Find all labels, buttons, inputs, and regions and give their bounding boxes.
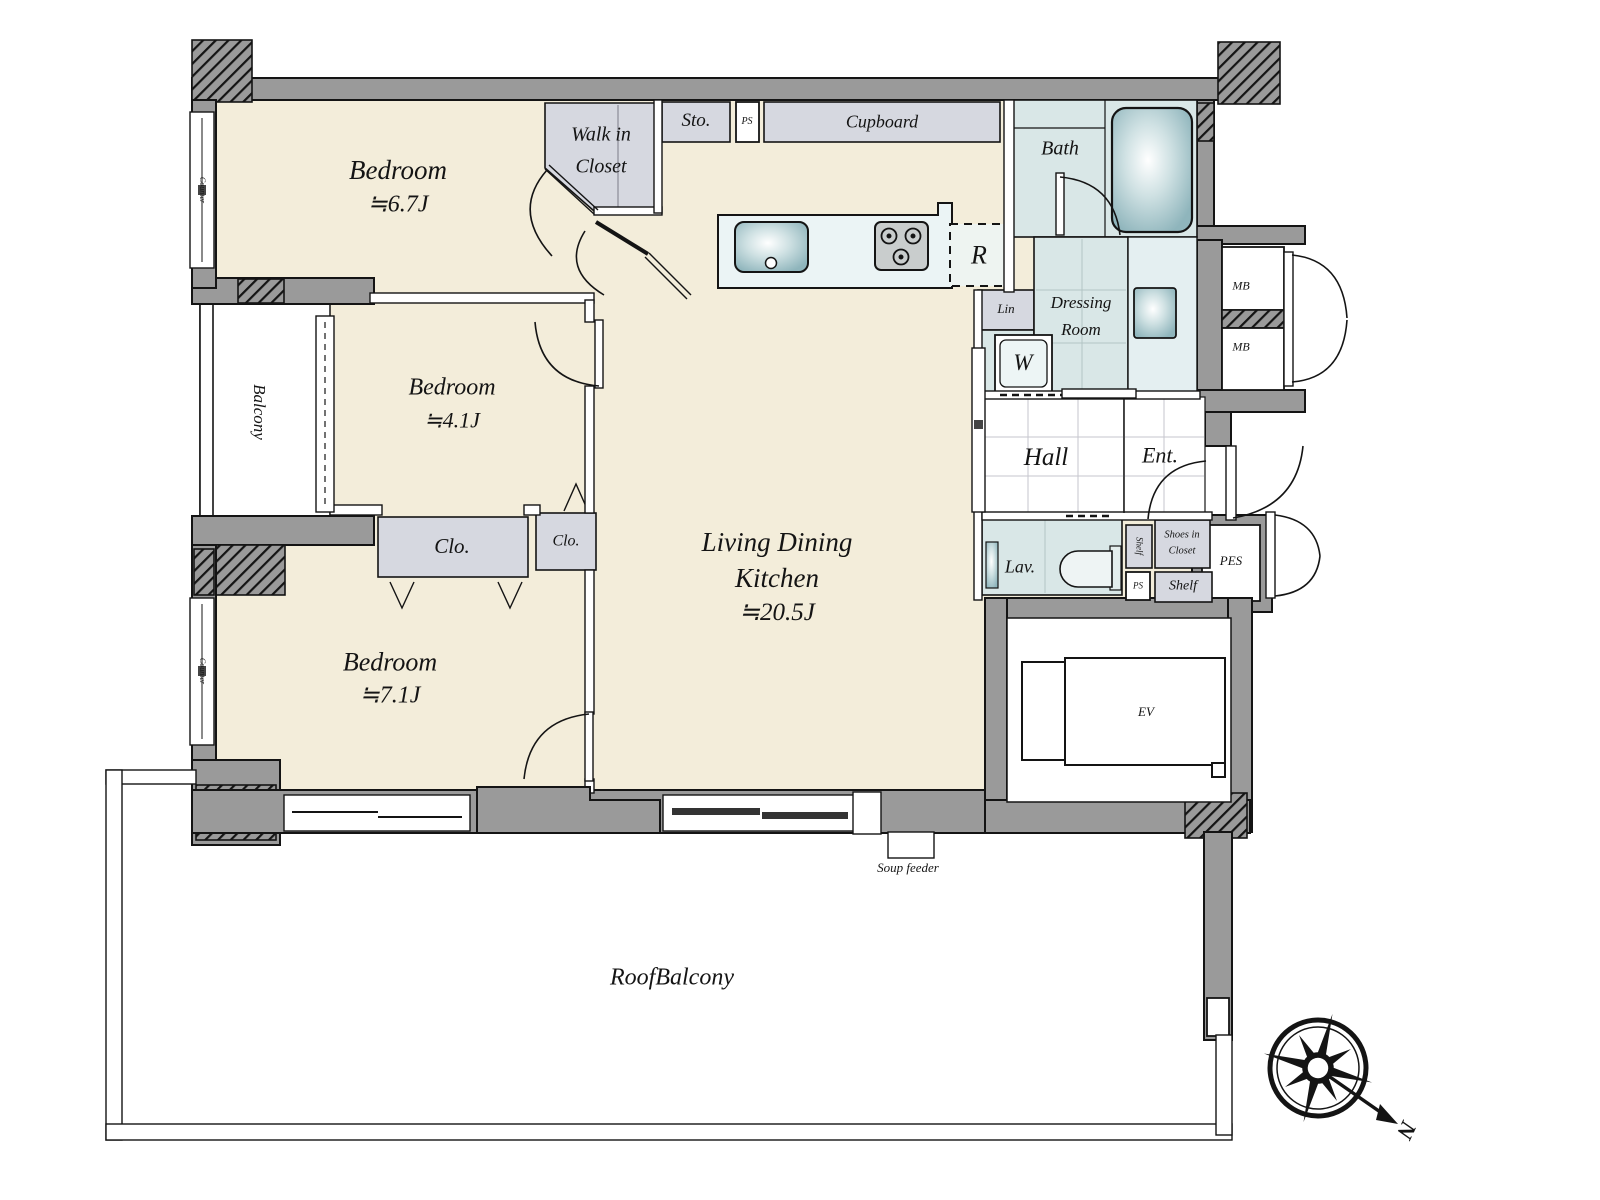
front-door bbox=[1226, 446, 1303, 520]
mb-doors bbox=[1284, 252, 1347, 386]
ldk-label-line1: Living Dining bbox=[702, 528, 853, 556]
bedroom-top-label: Bedroom bbox=[349, 156, 447, 184]
refrigerator-label: R bbox=[971, 241, 987, 268]
closet-wide-label: Clo. bbox=[434, 535, 470, 557]
shoes-closet-label-line2: Closet bbox=[1169, 545, 1196, 556]
elevator-label: EV bbox=[1138, 705, 1154, 719]
storage-label: Sto. bbox=[681, 111, 710, 131]
bedroom-mid-label: Bedroom bbox=[408, 375, 495, 400]
cupboard-label: Cupboard bbox=[846, 113, 918, 132]
wic-label-line1: Walk in bbox=[571, 125, 631, 146]
stove bbox=[875, 222, 928, 270]
shelf-label: Shelf bbox=[1169, 580, 1197, 595]
roof-balcony-label: RoofBalcony bbox=[610, 965, 734, 990]
wic-label-line2: Closet bbox=[575, 157, 626, 178]
lavatory-label: Lav. bbox=[1005, 558, 1035, 577]
bedroom-mid-area: ≒4.1J bbox=[424, 408, 480, 431]
bedroom-bottom-label: Bedroom bbox=[343, 648, 437, 675]
shelf-vertical-label: Shelf bbox=[1134, 537, 1143, 555]
ldk-label-line2: Kitchen bbox=[735, 564, 819, 592]
window-ldk-hall bbox=[972, 348, 985, 512]
bedroom-bottom-area: ≒7.1J bbox=[360, 683, 421, 708]
ps-bottom-label: PS bbox=[1133, 581, 1143, 590]
pes-label: PES bbox=[1220, 554, 1242, 568]
hall-label: Hall bbox=[1024, 445, 1068, 471]
mb-top-label: MB bbox=[1232, 280, 1249, 293]
bathtub bbox=[1112, 108, 1192, 232]
bedroom-top-area: ≒6.7J bbox=[368, 192, 429, 217]
soup-feeder-box bbox=[888, 832, 934, 858]
shoes-closet-label-line1: Shoes in bbox=[1164, 529, 1199, 540]
counter-bottom-label: Counter bbox=[198, 658, 206, 684]
dressing-label-line1: Dressing bbox=[1051, 294, 1112, 312]
ldk-area: ≒20.5J bbox=[739, 600, 815, 626]
linen-label: Lin bbox=[997, 302, 1014, 316]
entrance-label: Ent. bbox=[1142, 443, 1178, 466]
elevator-car bbox=[1022, 658, 1225, 777]
soup-feeder-label: Soup feeder bbox=[877, 861, 939, 875]
pes-doors bbox=[1266, 512, 1320, 598]
toilet bbox=[1060, 551, 1112, 587]
dressing-label-line2: Room bbox=[1061, 321, 1101, 339]
wash-basin bbox=[1134, 288, 1176, 338]
balcony-label: Balcony bbox=[250, 384, 268, 440]
ps-top-label: PS bbox=[741, 117, 752, 128]
compass-rose bbox=[1249, 999, 1398, 1136]
closet-small-label: Clo. bbox=[552, 534, 579, 551]
bath-label: Bath bbox=[1041, 139, 1079, 160]
floorplan: Bedroom ≒6.7J Walk in Closet Sto. PS Cup… bbox=[0, 0, 1600, 1200]
counter-top-label: Counter bbox=[198, 177, 206, 203]
washer-label: W bbox=[1013, 351, 1032, 375]
mb-bottom-label: MB bbox=[1232, 341, 1249, 354]
north-arrow bbox=[1376, 1104, 1398, 1124]
shoes-in-closet-box bbox=[1155, 520, 1210, 568]
